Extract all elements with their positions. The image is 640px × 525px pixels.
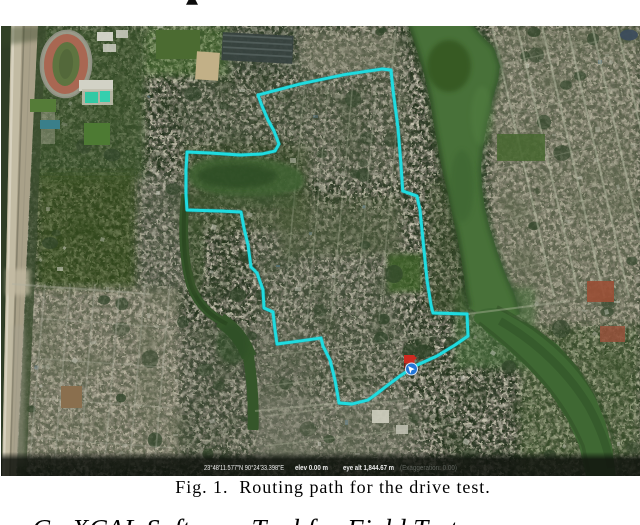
svg-text:(Exaggeration: 0.00): (Exaggeration: 0.00): [400, 465, 457, 472]
svg-text:23°48'11.577"N 90°24'33.398"E: 23°48'11.577"N 90°24'33.398"E: [204, 464, 284, 472]
svg-text:eye alt 1,844.67 m: eye alt 1,844.67 m: [343, 465, 394, 472]
svg-text:elev 0.00 m: elev 0.00 m: [295, 465, 328, 472]
